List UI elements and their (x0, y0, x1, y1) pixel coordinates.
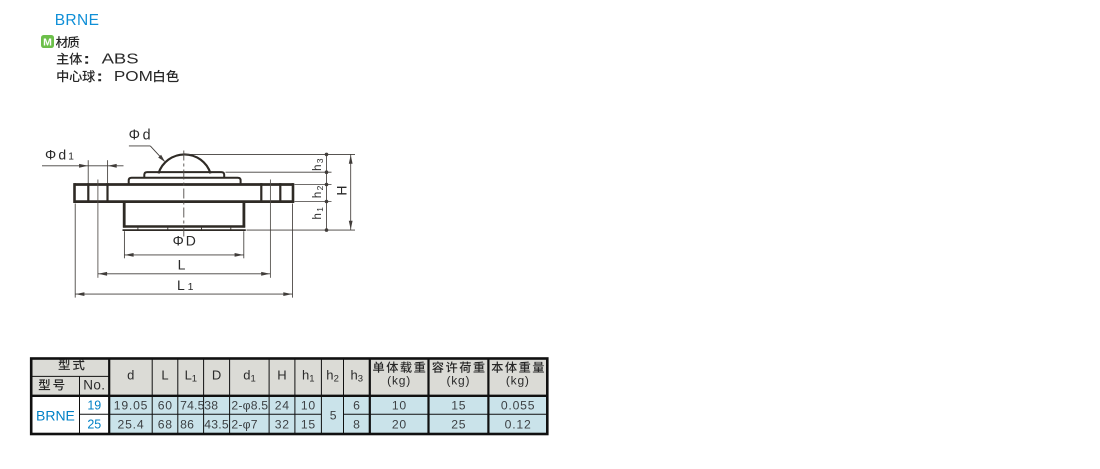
svg-text:25: 25 (451, 417, 466, 431)
svg-text:10: 10 (392, 398, 407, 412)
svg-text:1: 1 (309, 373, 314, 384)
svg-text:3: 3 (315, 158, 325, 163)
svg-text:H: H (333, 185, 349, 195)
svg-text:0.12: 0.12 (505, 417, 532, 431)
svg-text:43.5: 43.5 (204, 417, 229, 431)
svg-text:10: 10 (301, 398, 316, 412)
svg-text:68: 68 (158, 417, 173, 431)
svg-text:86: 86 (180, 417, 194, 431)
svg-text:19.05: 19.05 (114, 398, 149, 412)
svg-text:h: h (351, 367, 358, 382)
svg-text:24: 24 (275, 398, 290, 412)
svg-text:(kg): (kg) (387, 374, 411, 388)
svg-text:60: 60 (158, 398, 173, 412)
svg-text:L: L (185, 367, 192, 382)
svg-text:74.5: 74.5 (180, 398, 205, 412)
svg-text:ABS: ABS (102, 52, 139, 68)
svg-text:2: 2 (334, 373, 339, 384)
svg-text:2-φ7: 2-φ7 (231, 417, 257, 431)
svg-text:2: 2 (315, 185, 325, 190)
svg-text:L: L (178, 256, 186, 272)
svg-text:8: 8 (353, 417, 361, 431)
svg-text:ΦD: ΦD (173, 232, 198, 248)
svg-text:h: h (312, 213, 324, 219)
svg-text:1: 1 (188, 281, 194, 293)
svg-text:(kg): (kg) (506, 374, 530, 388)
svg-text:6: 6 (353, 398, 361, 412)
svg-text:No.: No. (83, 377, 105, 392)
svg-text:d: d (127, 367, 134, 382)
svg-text:1: 1 (68, 151, 74, 162)
svg-text:19: 19 (87, 398, 101, 412)
svg-text:L: L (161, 367, 168, 382)
svg-text:32: 32 (275, 417, 290, 431)
svg-text:Φd: Φd (45, 146, 68, 162)
svg-text:38: 38 (204, 398, 218, 412)
svg-text:20: 20 (392, 417, 407, 431)
svg-text:1: 1 (315, 207, 325, 212)
svg-text:(kg): (kg) (446, 374, 470, 388)
svg-text:H: H (277, 367, 286, 382)
svg-text:1: 1 (251, 373, 256, 384)
svg-text:3: 3 (358, 373, 363, 384)
svg-text:h: h (312, 164, 324, 170)
svg-text:15: 15 (451, 398, 466, 412)
svg-text:1: 1 (192, 373, 197, 384)
svg-text:BRNE: BRNE (55, 12, 100, 29)
svg-text:25: 25 (87, 417, 101, 431)
svg-text:25.4: 25.4 (118, 417, 145, 431)
svg-text:5: 5 (330, 408, 337, 422)
svg-text:BRNE: BRNE (36, 407, 75, 423)
svg-text:POM: POM (114, 69, 153, 85)
svg-text:Φd: Φd (129, 128, 154, 144)
svg-text:15: 15 (301, 417, 316, 431)
svg-text:L: L (177, 277, 185, 293)
svg-text:D: D (212, 367, 221, 382)
svg-text:2-φ8.5: 2-φ8.5 (231, 398, 268, 412)
svg-text:d: d (243, 367, 250, 382)
svg-text:h: h (302, 367, 309, 382)
svg-text:0.055: 0.055 (501, 398, 536, 412)
svg-text:h: h (326, 367, 333, 382)
svg-text:h: h (312, 192, 324, 198)
svg-text:M: M (43, 36, 52, 48)
